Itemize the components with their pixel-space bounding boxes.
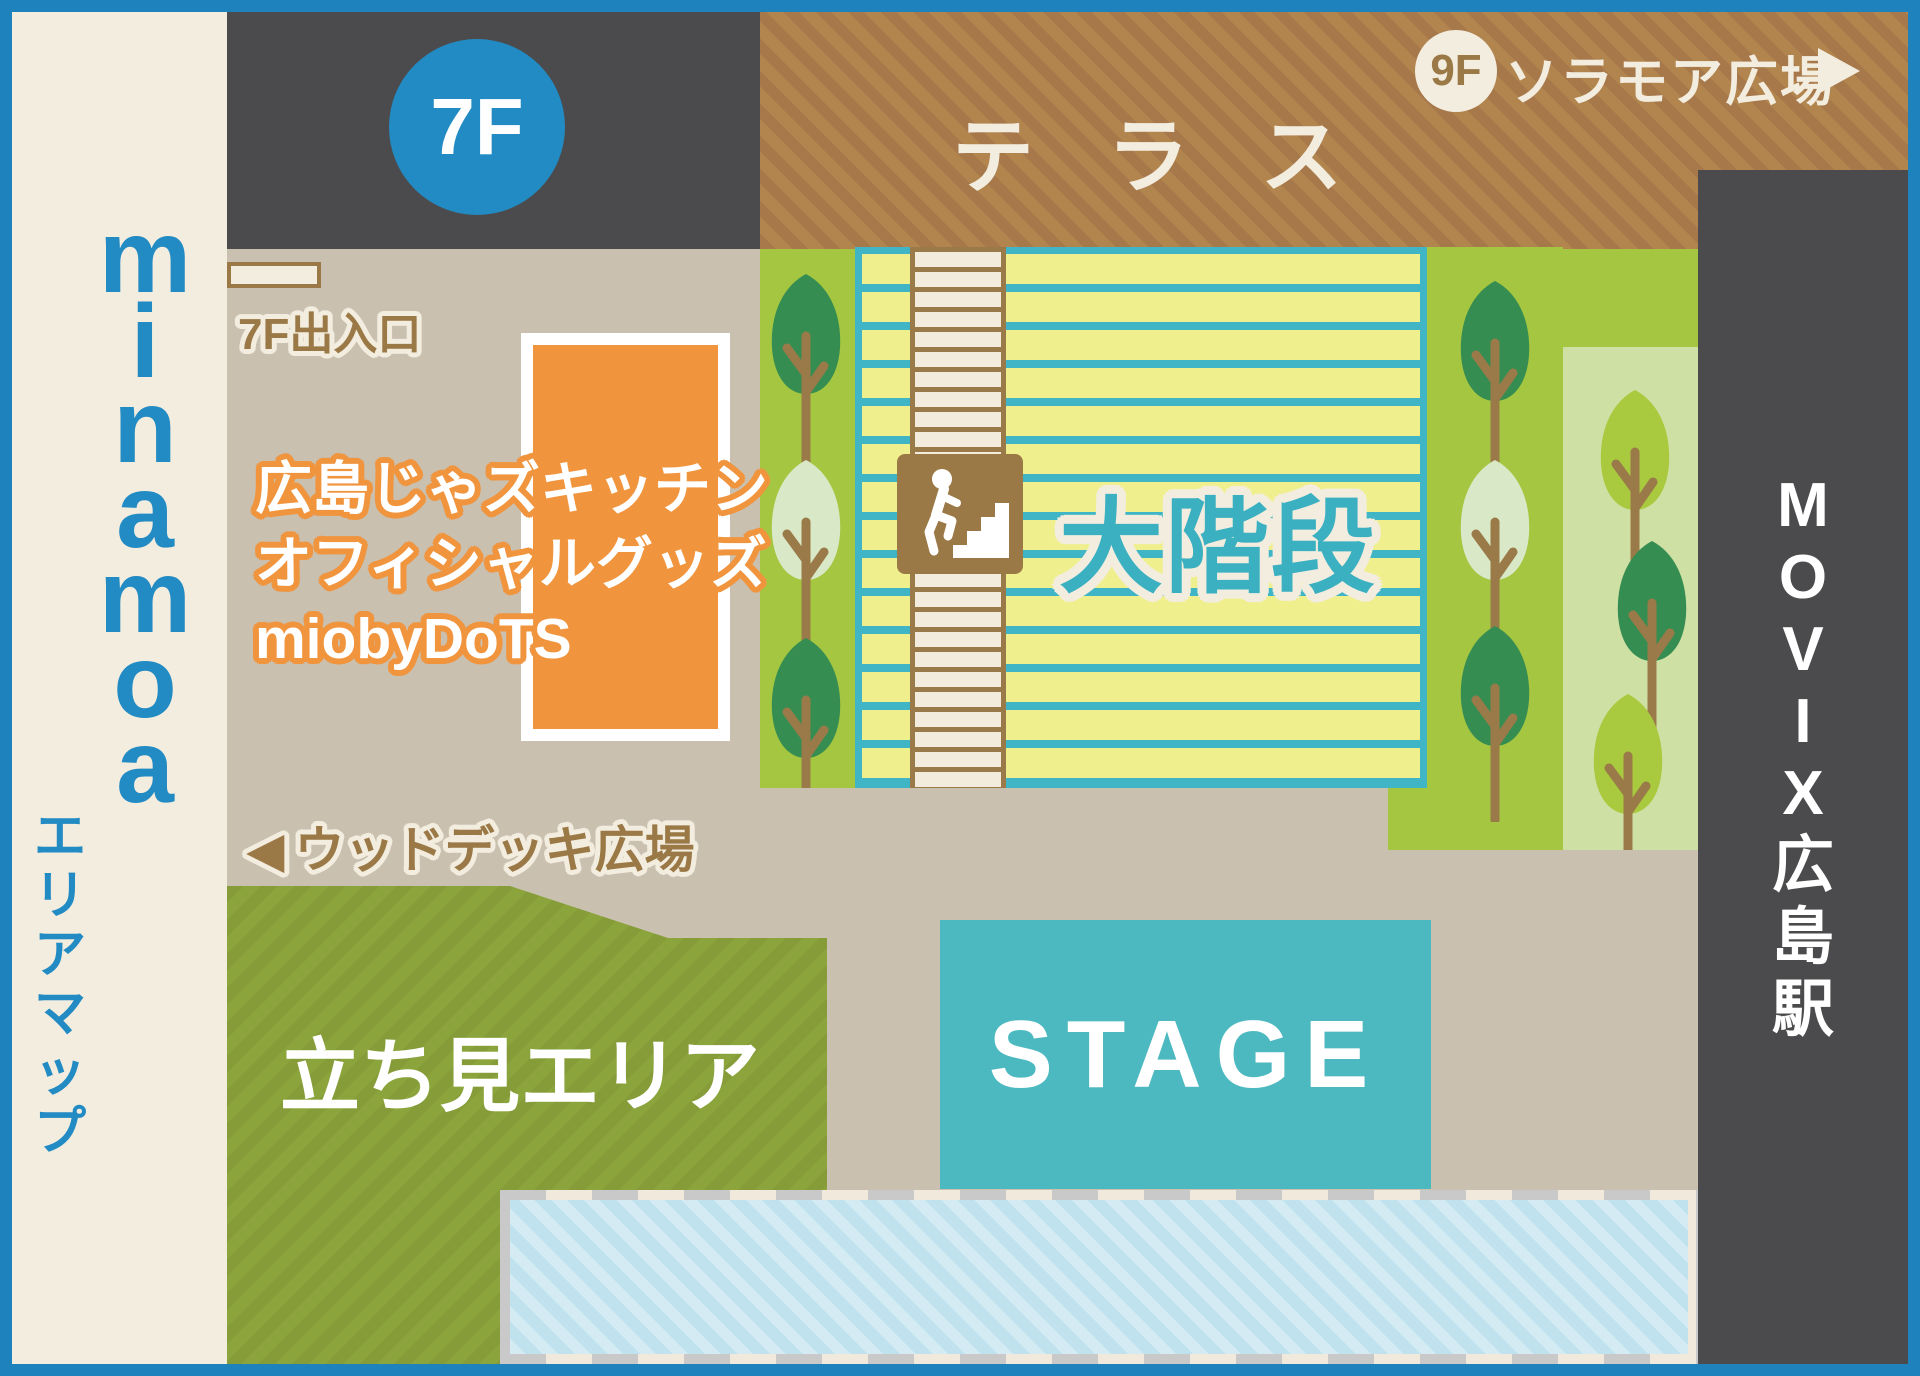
stairs-person-icon — [897, 454, 1023, 574]
grand-stairs-label: 大階段 — [1059, 462, 1377, 613]
movix-station-block: MOVIX広島駅 — [1698, 170, 1908, 1364]
entrance-label: 7F出入口 — [238, 298, 421, 362]
wood-deck-label: ウッドデッキ広場 — [294, 822, 694, 878]
floor-9f-badge[interactable]: 9F — [1415, 30, 1497, 112]
soramoa-plaza-link[interactable]: ソラモア広場 — [1505, 40, 1835, 116]
stage-label: STAGE — [989, 1000, 1383, 1110]
frame-right — [1908, 0, 1920, 1376]
audience-area-fill — [510, 1200, 1688, 1354]
tree-icon — [1450, 277, 1540, 477]
frame-top — [0, 0, 1920, 12]
floor-map: 7F テラス 9F ソラモア広場 minamoa エリアマップ 大階段 7F出入… — [0, 0, 1920, 1376]
stage-block: STAGE — [940, 920, 1431, 1189]
green-area-extension — [1563, 249, 1698, 347]
brand-logo: minamoa — [85, 215, 205, 810]
entrance-door-marker — [227, 262, 321, 288]
tree-strip-left — [760, 249, 855, 788]
terrace-label: テラス — [952, 90, 1415, 209]
goods-line-2: オフィシャルグッズ — [255, 527, 768, 602]
floor-badge: 7F — [389, 39, 565, 215]
wood-deck-link[interactable]: ◀ウッドデッキ広場 — [246, 810, 694, 882]
tree-icon — [761, 270, 851, 470]
floor-9f-badge-label: 9F — [1430, 46, 1481, 96]
standing-area-label: 立ち見エリア — [240, 1012, 800, 1128]
movix-station-label: MOVIX広島駅 — [1743, 470, 1863, 1046]
tree-strip-pale — [1563, 347, 1698, 850]
arrow-left-icon: ◀ — [246, 822, 284, 878]
floor-badge-label: 7F — [430, 81, 523, 173]
goods-line-1: 広島じゃズキッチン — [255, 452, 768, 527]
tree-strip-right — [1427, 247, 1563, 850]
tree-icon — [1450, 622, 1540, 822]
green-area-step — [1388, 788, 1427, 850]
goods-booth-label: 広島じゃズキッチン オフィシャルグッズ miobyDoTS — [255, 452, 768, 677]
tree-icon — [1583, 690, 1673, 850]
frame-left — [0, 0, 12, 1376]
frame-bottom — [0, 1364, 1920, 1376]
tree-icon — [761, 456, 851, 656]
audience-area — [500, 1190, 1698, 1364]
goods-line-3: miobyDoTS — [255, 602, 768, 677]
tree-icon — [761, 634, 851, 788]
page-title: エリアマップ — [10, 808, 110, 1162]
